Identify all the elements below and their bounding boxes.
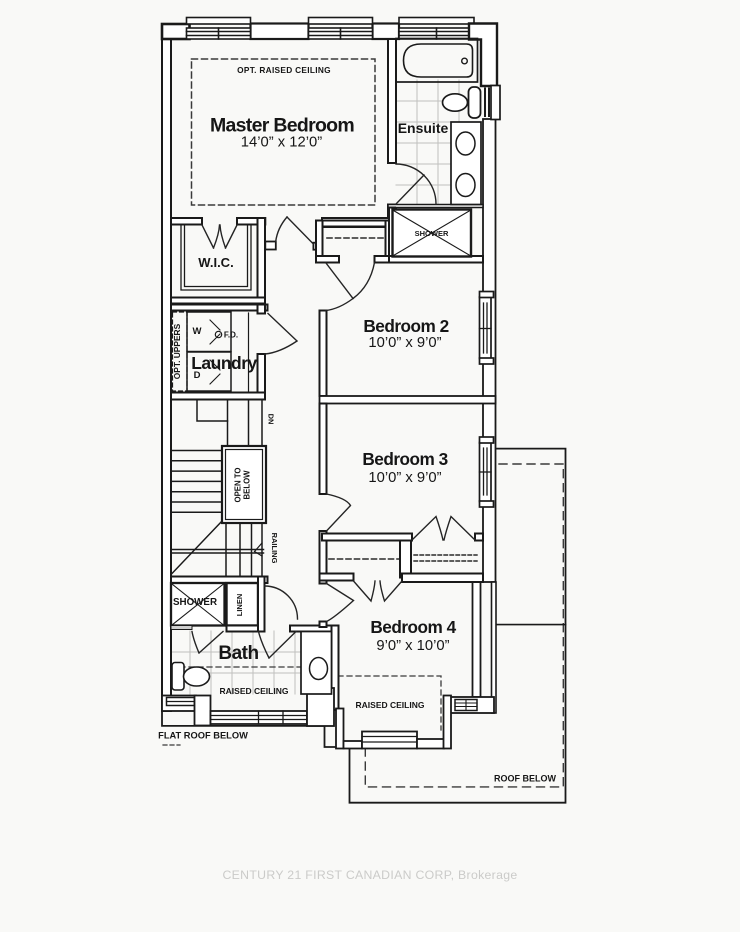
svg-text:LINEN: LINEN bbox=[235, 594, 244, 617]
svg-text:Ensuite: Ensuite bbox=[398, 120, 449, 136]
svg-text:Bedroom 3: Bedroom 3 bbox=[362, 449, 447, 469]
svg-text:F.D.: F.D. bbox=[224, 331, 238, 340]
svg-text:OPT. RAISED CEILING: OPT. RAISED CEILING bbox=[237, 65, 331, 75]
svg-text:Master Bedroom: Master Bedroom bbox=[210, 115, 354, 137]
svg-text:ROOF BELOW: ROOF BELOW bbox=[494, 774, 556, 784]
svg-text:SHOWER: SHOWER bbox=[173, 597, 217, 608]
svg-text:Bedroom 2: Bedroom 2 bbox=[363, 316, 448, 336]
svg-text:RAISED CEILING: RAISED CEILING bbox=[220, 686, 289, 696]
svg-text:DN: DN bbox=[267, 414, 276, 425]
svg-text:RAILING: RAILING bbox=[270, 533, 279, 564]
svg-text:OPEN TO: OPEN TO bbox=[234, 468, 243, 503]
svg-text:CENTURY 21 FIRST CANADIAN CORP: CENTURY 21 FIRST CANADIAN CORP, Brokerag… bbox=[223, 868, 518, 882]
svg-text:RAISED CEILING: RAISED CEILING bbox=[356, 700, 425, 710]
svg-text:OPT. UPPERS: OPT. UPPERS bbox=[172, 323, 182, 379]
svg-text:W: W bbox=[193, 326, 202, 337]
svg-text:BELOW: BELOW bbox=[243, 470, 252, 500]
svg-text:Bedroom 4: Bedroom 4 bbox=[370, 617, 456, 637]
svg-text:9’0” x 10’0”: 9’0” x 10’0” bbox=[376, 638, 449, 654]
svg-text:FLAT ROOF BELOW: FLAT ROOF BELOW bbox=[158, 731, 248, 741]
svg-text:W.I.C.: W.I.C. bbox=[198, 255, 233, 270]
svg-text:SHOWER: SHOWER bbox=[415, 229, 449, 238]
svg-text:10’0” x 9’0”: 10’0” x 9’0” bbox=[368, 470, 441, 486]
svg-text:10’0” x 9’0”: 10’0” x 9’0” bbox=[368, 335, 441, 351]
svg-text:14’0” x 12’0”: 14’0” x 12’0” bbox=[241, 135, 322, 151]
svg-text:Laundry: Laundry bbox=[191, 353, 257, 373]
svg-text:Bath: Bath bbox=[218, 643, 258, 664]
